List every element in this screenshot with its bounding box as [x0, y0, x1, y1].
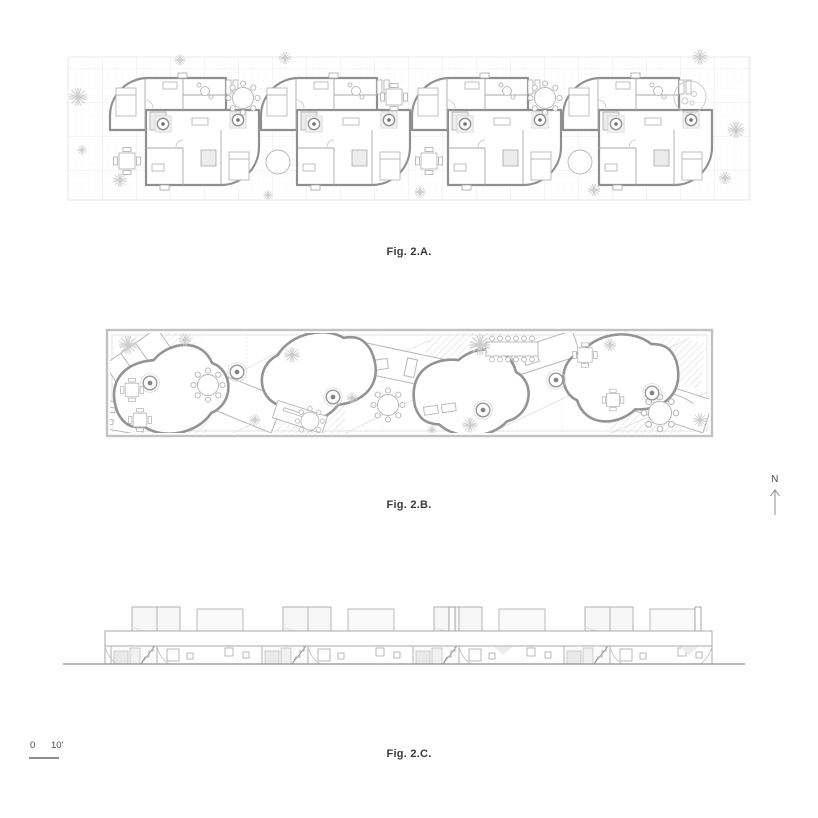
scale-bar-line — [29, 757, 59, 759]
drawing-sheet: Fig. 2.A. — [0, 0, 818, 818]
scale-ten-label: 10' — [51, 740, 63, 751]
figure-2c-elevation — [0, 595, 818, 685]
scale-bar: 0 10' — [26, 740, 86, 764]
figure-label-2c: Fig. 2.C. — [0, 748, 818, 760]
figure-label-2a: Fig. 2.A. — [0, 246, 818, 258]
scale-zero-label: 0 — [30, 740, 35, 751]
elevation-drawing — [0, 595, 818, 685]
figure-label-2b: Fig. 2.B. — [0, 499, 818, 511]
building-band — [105, 631, 712, 664]
north-indicator: N — [760, 474, 790, 522]
north-arrow-icon — [760, 485, 790, 517]
north-label: N — [760, 474, 790, 485]
roof-volumes — [132, 607, 701, 631]
floor-plan-b-drawing — [0, 325, 818, 450]
figure-2b-plan — [0, 325, 818, 450]
